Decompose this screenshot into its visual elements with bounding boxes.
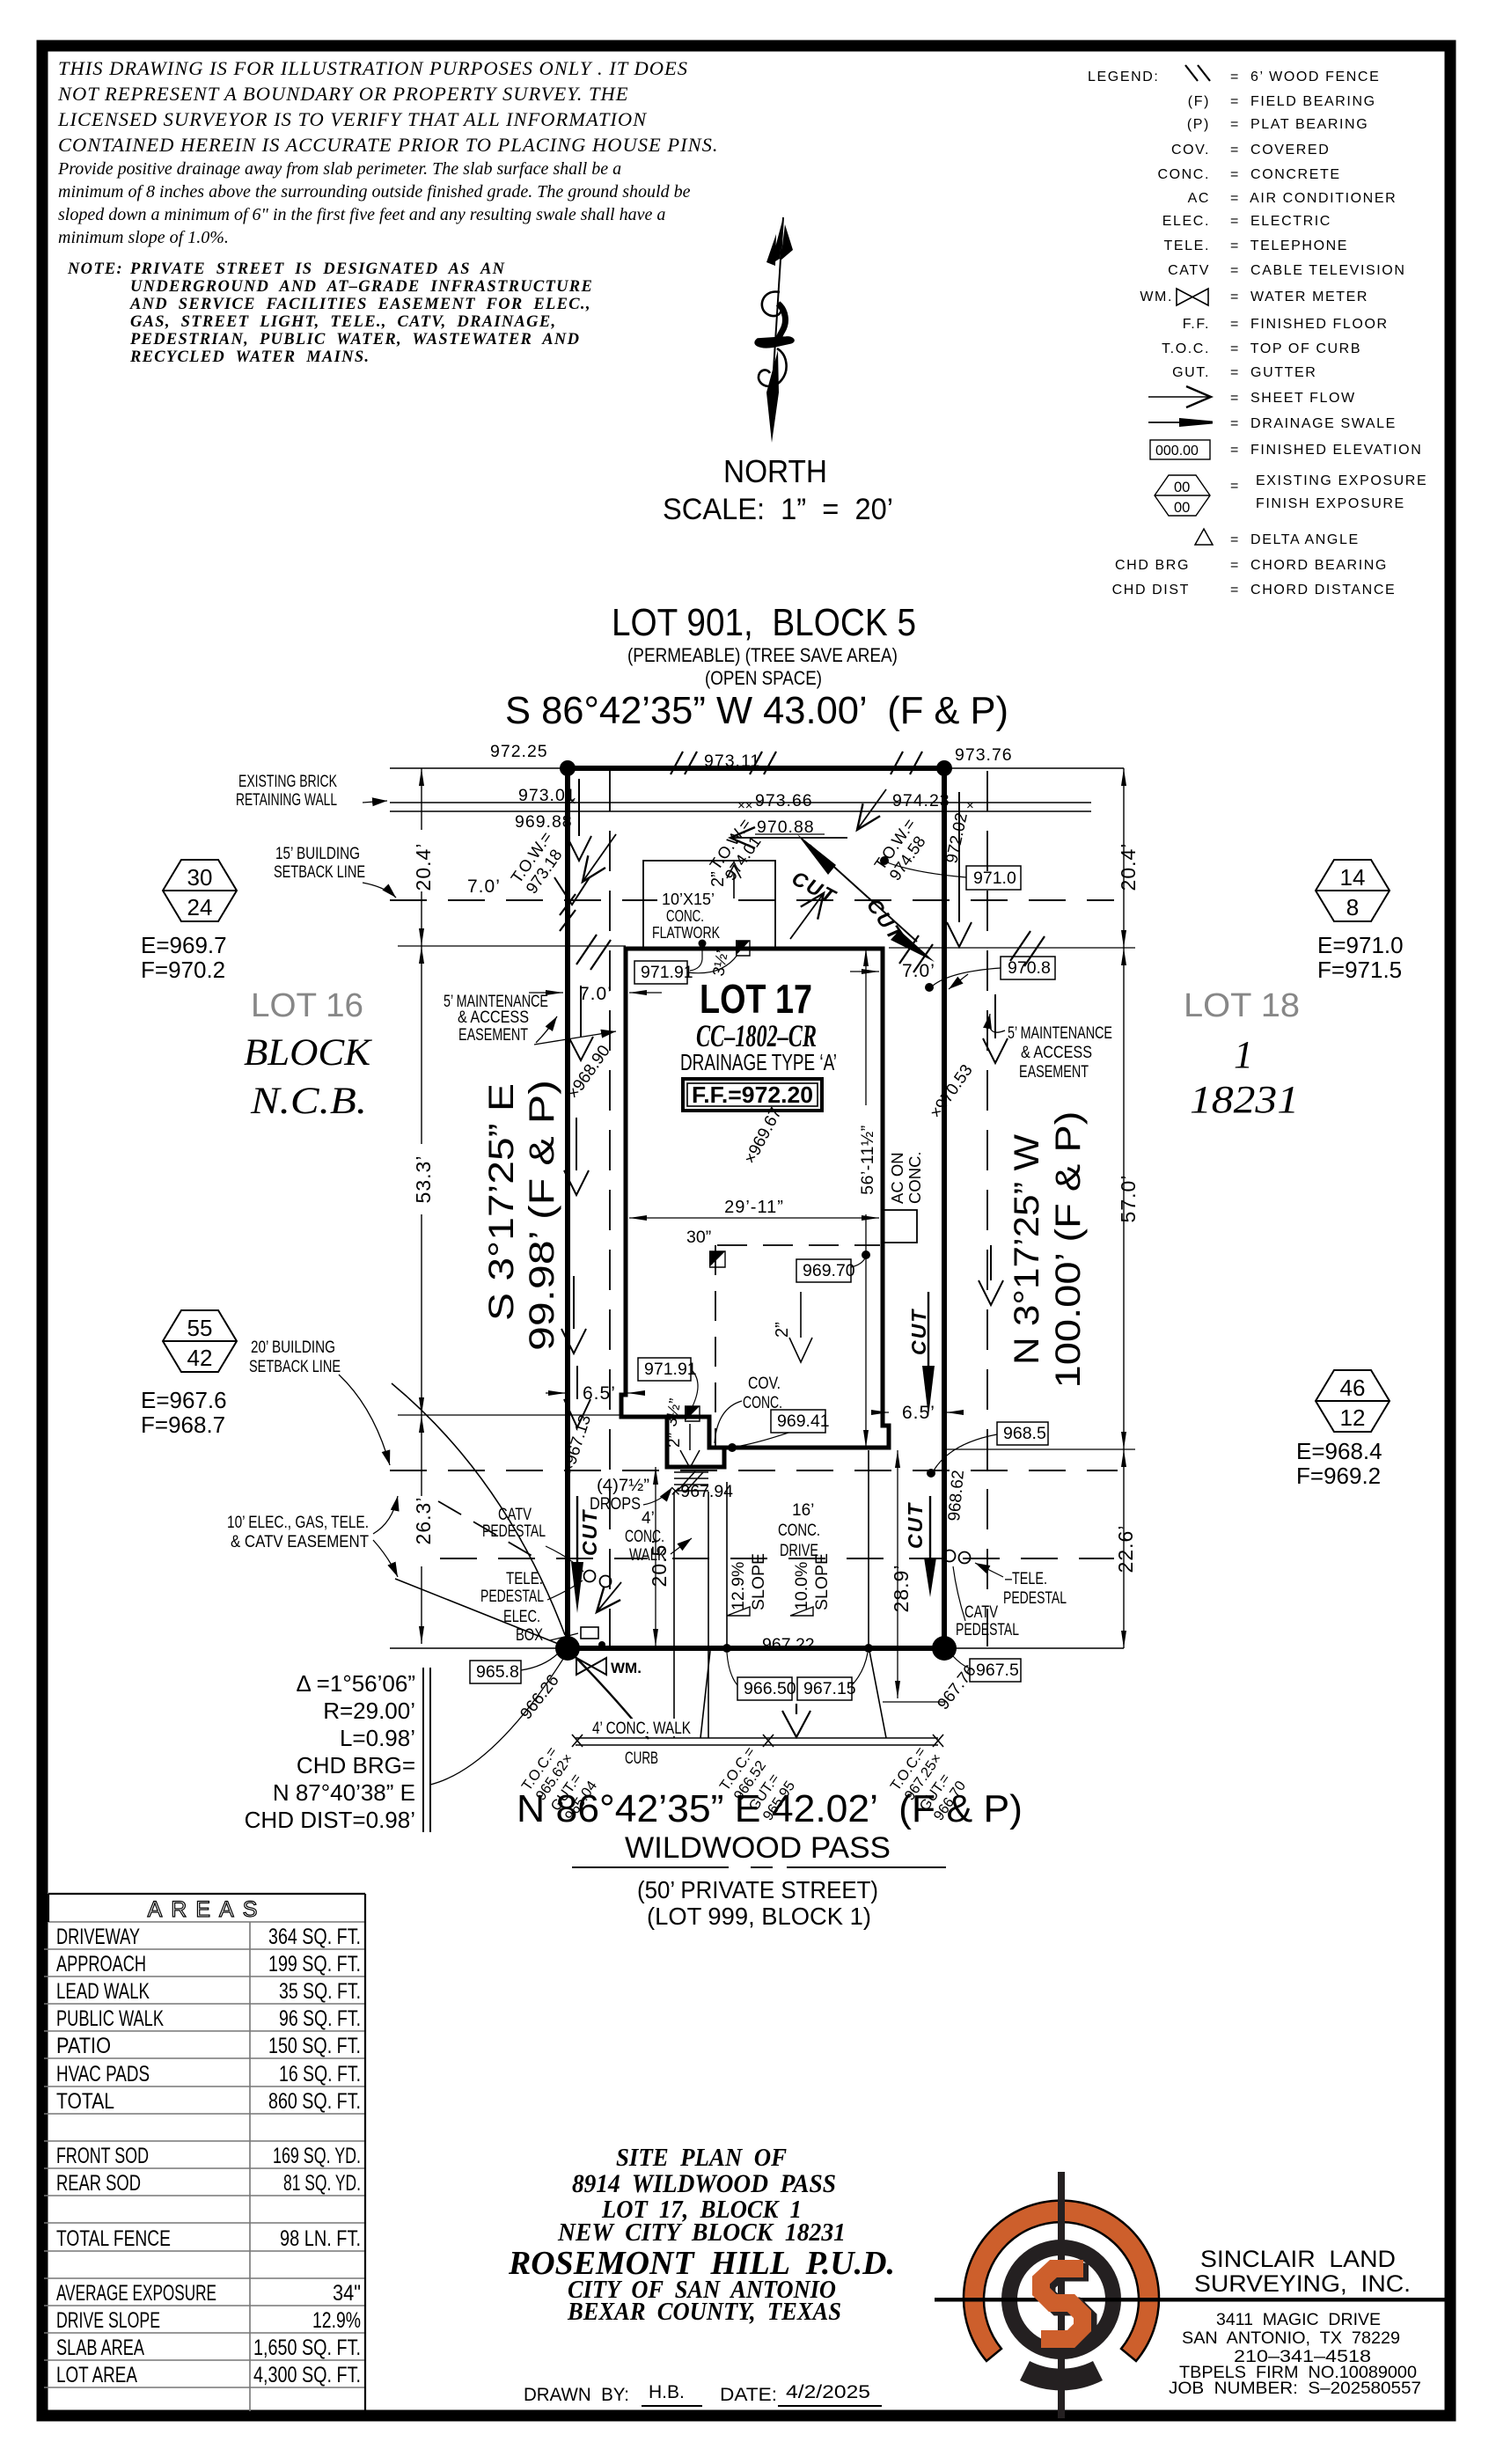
svg-text:973.66: 973.66 — [755, 791, 813, 810]
svg-text:L=0.98’: L=0.98’ — [340, 1725, 415, 1751]
svg-text:= FIELD BEARING: = FIELD BEARING — [1230, 94, 1376, 109]
svg-text:10.0%: 10.0% — [792, 1562, 811, 1610]
svg-text:S 86°42’35” W 43.00’ (F & P): S 86°42’35” W 43.00’ (F & P) — [505, 689, 1008, 732]
svg-text:7.0’: 7.0’ — [579, 984, 612, 1004]
svg-text:Provide positive drainage away: Provide positive drainage away from slab… — [57, 159, 621, 179]
svg-text:199 SQ. FT.: 199 SQ. FT. — [268, 1952, 361, 1976]
svg-text:CATV: CATV — [1168, 263, 1210, 278]
svg-text:35 SQ. FT.: 35 SQ. FT. — [279, 1979, 361, 2004]
svg-text:34": 34" — [333, 2281, 361, 2306]
svg-text:PEDESTAL: PEDESTAL — [480, 1588, 544, 1606]
svg-text:967.15: 967.15 — [803, 1679, 856, 1698]
svg-text:LOT 901, BLOCK 5: LOT 901, BLOCK 5 — [612, 601, 916, 644]
svg-text:BEXAR COUNTY, TEXAS: BEXAR COUNTY, TEXAS — [567, 2299, 841, 2326]
svg-text:AREAS: AREAS — [148, 1897, 267, 1922]
svg-text:& CATV EASEMENT: & CATV EASEMENT — [231, 1533, 369, 1551]
svg-text:00: 00 — [1174, 480, 1190, 495]
svg-text:1: 1 — [1234, 1033, 1253, 1076]
svg-text:2”: 2” — [665, 1433, 684, 1448]
svg-text:N 3°17’25” W: N 3°17’25” W — [1008, 1134, 1046, 1365]
svg-text:29’-11”: 29’-11” — [724, 1198, 784, 1217]
svg-text:98 LN. FT.: 98 LN. FT. — [280, 2226, 361, 2251]
svg-text:00: 00 — [1174, 500, 1190, 516]
svg-text:000.00: 000.00 — [1155, 444, 1199, 458]
svg-text:= DELTA ANGLE: = DELTA ANGLE — [1230, 532, 1360, 547]
svg-text:969.70: 969.70 — [803, 1261, 855, 1280]
svg-text:973.01: 973.01 — [518, 786, 576, 805]
svg-text:968.5: 968.5 — [1003, 1424, 1046, 1443]
svg-text:WILDWOOD PASS: WILDWOOD PASS — [625, 1831, 891, 1865]
svg-text:53.3’: 53.3’ — [412, 1155, 435, 1204]
svg-text:30”: 30” — [686, 1228, 711, 1247]
svg-text:EASEMENT: EASEMENT — [1019, 1063, 1089, 1082]
svg-text:AC ON: AC ON — [888, 1152, 906, 1204]
svg-text:4,300 SQ. FT.: 4,300 SQ. FT. — [253, 2363, 361, 2387]
svg-text:SLOPE: SLOPE — [812, 1553, 832, 1610]
svg-text:= ELECTRIC: = ELECTRIC — [1230, 214, 1331, 229]
svg-text:22.6’: 22.6’ — [1114, 1525, 1137, 1573]
svg-text:SETBACK LINE: SETBACK LINE — [274, 863, 365, 882]
svg-text:18231: 18231 — [1190, 1078, 1299, 1121]
svg-text:967.22: 967.22 — [762, 1635, 815, 1654]
svg-text:N 86°42’35” E 42.02’ (F & P): N 86°42’35” E 42.02’ (F & P) — [517, 1787, 1023, 1830]
svg-text:972.25: 972.25 — [490, 742, 548, 761]
svg-text:T.O.C.: T.O.C. — [1162, 341, 1210, 356]
svg-text:F.F.: F.F. — [1183, 317, 1210, 332]
svg-text:860 SQ. FT.: 860 SQ. FT. — [268, 2089, 361, 2114]
svg-text:LEGEND:: LEGEND: — [1088, 70, 1159, 84]
svg-text:(LOT 999, BLOCK 1): (LOT 999, BLOCK 1) — [647, 1903, 871, 1930]
svg-text:FINISH EXPOSURE: FINISH EXPOSURE — [1256, 496, 1405, 511]
svg-text:= CABLE TELEVISION: = CABLE TELEVISION — [1230, 263, 1406, 278]
svg-text:= SHEET FLOW: = SHEET FLOW — [1230, 391, 1356, 406]
svg-text:364 SQ. FT.: 364 SQ. FT. — [268, 1925, 361, 1949]
svg-text:DRIVEWAY: DRIVEWAY — [56, 1925, 140, 1949]
svg-text:56’-11½”: 56’-11½” — [858, 1125, 877, 1195]
svg-text:TOTAL FENCE: TOTAL FENCE — [56, 2226, 171, 2251]
svg-text:TELE.: TELE. — [506, 1570, 543, 1588]
svg-text:99.98’ (F & P): 99.98’ (F & P) — [523, 1080, 561, 1351]
svg-text:CONC.: CONC. — [778, 1522, 820, 1540]
svg-text:= COVERED: = COVERED — [1230, 143, 1330, 158]
svg-text:COV.: COV. — [748, 1375, 781, 1393]
svg-text:4’: 4’ — [642, 1509, 655, 1528]
svg-text:LICENSED SURVEYOR IS TO VERIFY: LICENSED SURVEYOR IS TO VERIFY THAT ALL … — [57, 108, 648, 130]
svg-text:CURB: CURB — [625, 1749, 658, 1768]
svg-text:12: 12 — [1340, 1404, 1366, 1431]
svg-text:CC–1802–CR: CC–1802–CR — [696, 1018, 817, 1053]
svg-text:2”: 2” — [708, 871, 728, 887]
svg-text:F.F.=972.20: F.F.=972.20 — [692, 1082, 813, 1108]
svg-text:RECYCLED WATER MAINS.: RECYCLED WATER MAINS. — [129, 348, 370, 366]
svg-text:969.88: 969.88 — [515, 812, 573, 832]
svg-text:16 SQ. FT.: 16 SQ. FT. — [279, 2062, 361, 2086]
svg-text:= TELEPHONE: = TELEPHONE — [1230, 238, 1348, 253]
svg-text:= AIR CONDITIONER: = AIR CONDITIONER — [1230, 191, 1397, 206]
svg-text:DRIVE SLOPE: DRIVE SLOPE — [56, 2308, 160, 2333]
svg-text:= PLAT BEARING: = PLAT BEARING — [1230, 117, 1368, 132]
svg-text:971.91: 971.91 — [641, 963, 693, 982]
svg-text:TELE.: TELE. — [1164, 238, 1210, 253]
svg-text:WALK: WALK — [629, 1546, 666, 1565]
svg-text:LOT 18: LOT 18 — [1184, 987, 1300, 1024]
svg-text:970.8: 970.8 — [1008, 958, 1051, 978]
svg-text:F=970.2: F=970.2 — [141, 957, 225, 983]
svg-text:CONC.: CONC. — [906, 1151, 924, 1204]
svg-text:12.9%: 12.9% — [312, 2308, 361, 2333]
svg-text:10’X15’: 10’X15’ — [662, 890, 715, 908]
svg-text:6.5’: 6.5’ — [902, 1403, 935, 1423]
svg-text:= GUTTER: = GUTTER — [1230, 365, 1316, 380]
svg-text:DRAINAGE TYPE ‘A’: DRAINAGE TYPE ‘A’ — [680, 1049, 837, 1075]
svg-text:(4)7½”: (4)7½” — [597, 1477, 649, 1495]
svg-text:= FINISHED ELEVATION: = FINISHED ELEVATION — [1230, 443, 1422, 458]
svg-text:ELEC.: ELEC. — [503, 1608, 540, 1626]
svg-text:PEDESTAL: PEDESTAL — [482, 1522, 546, 1541]
svg-text:24: 24 — [187, 894, 213, 920]
svg-text:EXISTING EXPOSURE: EXISTING EXPOSURE — [1256, 473, 1427, 488]
svg-text:4’ CONC. WALK: 4’ CONC. WALK — [592, 1720, 691, 1738]
svg-text:971.91: 971.91 — [644, 1360, 697, 1379]
svg-text:SETBACK LINE: SETBACK LINE — [249, 1358, 341, 1376]
svg-text:4/2/2025: 4/2/2025 — [786, 2382, 870, 2402]
svg-text:COV.: COV. — [1171, 143, 1210, 158]
svg-text:CUT: CUT — [904, 1502, 927, 1549]
svg-text:7.0’: 7.0’ — [902, 961, 935, 981]
svg-text:F=968.7: F=968.7 — [141, 1412, 225, 1438]
svg-text:TOTAL: TOTAL — [56, 2089, 114, 2114]
svg-text:SLAB AREA: SLAB AREA — [56, 2336, 144, 2360]
svg-text:CONC.: CONC. — [666, 906, 704, 925]
svg-text:PATIO: PATIO — [56, 2034, 111, 2058]
svg-text:SLOPE: SLOPE — [749, 1553, 768, 1610]
svg-text:12.9%: 12.9% — [729, 1562, 748, 1610]
svg-text:=: = — [1230, 479, 1240, 494]
svg-text:CHD DIST: CHD DIST — [1112, 583, 1190, 598]
svg-text:PUBLIC WALK: PUBLIC WALK — [56, 2006, 164, 2031]
svg-text:R=29.00’: R=29.00’ — [323, 1698, 415, 1724]
svg-text:169 SQ. YD.: 169 SQ. YD. — [273, 2144, 361, 2168]
svg-text:LOT AREA: LOT AREA — [56, 2363, 137, 2387]
svg-text:×: × — [568, 794, 576, 809]
svg-text:CHD DIST=0.98’: CHD DIST=0.98’ — [245, 1807, 415, 1833]
svg-text:CATV: CATV — [964, 1603, 998, 1622]
svg-text:JOB NUMBER: S–202580557: JOB NUMBER: S–202580557 — [1169, 2379, 1421, 2398]
svg-text:26.3’: 26.3’ — [412, 1497, 435, 1545]
svg-text:969.41: 969.41 — [777, 1412, 830, 1431]
svg-text:150 SQ. FT.: 150 SQ. FT. — [268, 2034, 361, 2058]
svg-text:LOT 17: LOT 17 — [700, 976, 812, 1022]
svg-text:(50’ PRIVATE STREET): (50’ PRIVATE STREET) — [637, 1876, 878, 1903]
svg-text:(P): (P) — [1187, 117, 1210, 132]
svg-text:(PERMEABLE) (TREE SAVE AREA): (PERMEABLE) (TREE SAVE AREA) — [627, 644, 898, 666]
svg-text:–TELE.: –TELE. — [1005, 1570, 1047, 1588]
svg-text:S 3°17’25” E: S 3°17’25” E — [482, 1083, 521, 1321]
svg-text:= CHORD BEARING: = CHORD BEARING — [1230, 558, 1388, 573]
svg-text:AND SERVICE FACILITIES EASE: AND SERVICE FACILITIES EASEMENT FOR ELEC… — [129, 296, 591, 313]
svg-text:GAS, STREET LIGHT, TELE.,: GAS, STREET LIGHT, TELE., CATV, DRAINAGE… — [130, 313, 556, 331]
svg-text:Δ =1°56’06”: Δ =1°56’06” — [297, 1670, 415, 1697]
svg-text:PEDESTRIAN, PUBLIC WATER, W: PEDESTRIAN, PUBLIC WATER, WASTEWATER AND — [129, 331, 580, 348]
svg-text:BOX: BOX — [516, 1626, 543, 1645]
svg-text:N.C.B.: N.C.B. — [250, 1081, 367, 1122]
svg-text:WM.: WM. — [611, 1660, 642, 1676]
svg-text:CHD BRG: CHD BRG — [1115, 558, 1190, 573]
svg-text:minimum slope of 1.0%.: minimum slope of 1.0%. — [58, 228, 229, 247]
svg-text:= WATER METER: = WATER METER — [1230, 290, 1368, 304]
svg-text:= DRAINAGE SWALE: = DRAINAGE SWALE — [1230, 416, 1397, 431]
svg-text:EXISTING BRICK: EXISTING BRICK — [238, 773, 337, 791]
svg-text:N 87°40’38” E: N 87°40’38” E — [273, 1779, 415, 1806]
svg-text:& ACCESS: & ACCESS — [1021, 1044, 1092, 1062]
svg-text:minimum of 8 inches above the: minimum of 8 inches above the surroundin… — [58, 182, 691, 202]
svg-text:××: ×× — [737, 798, 753, 813]
svg-text:8: 8 — [1346, 894, 1359, 920]
svg-text:967.5: 967.5 — [976, 1661, 1019, 1680]
svg-text:7.0’: 7.0’ — [467, 876, 501, 897]
svg-text:H.B.: H.B. — [649, 2382, 685, 2402]
svg-text:971.0: 971.0 — [973, 869, 1016, 888]
svg-text:42: 42 — [187, 1345, 213, 1371]
svg-text:CATV: CATV — [498, 1506, 532, 1524]
svg-text:GUT.: GUT. — [1172, 365, 1210, 380]
svg-text:NOT REPRESENT A BOUNDARY OR PR: NOT REPRESENT A BOUNDARY OR PROPERTY SUR… — [57, 83, 628, 105]
svg-text:15’ BUILDING: 15’ BUILDING — [275, 845, 360, 863]
svg-text:57.0’: 57.0’ — [1117, 1175, 1140, 1223]
svg-text:THIS DRAWING IS FOR ILLUSTRATI: THIS DRAWING IS FOR ILLUSTRATION PURPOSE… — [58, 57, 688, 79]
svg-text:E=968.4: E=968.4 — [1296, 1438, 1382, 1464]
svg-text:SINCLAIR LAND: SINCLAIR LAND — [1200, 2246, 1396, 2272]
svg-text:55: 55 — [187, 1315, 213, 1341]
svg-text:E=971.0: E=971.0 — [1317, 932, 1404, 958]
svg-text:sloped down a minimum of 6" in: sloped down a minimum of 6" in the first… — [58, 205, 665, 224]
svg-text:81 SQ. YD.: 81 SQ. YD. — [283, 2171, 361, 2196]
svg-text:APPROACH: APPROACH — [56, 1952, 146, 1976]
svg-text:CONC.: CONC. — [625, 1528, 664, 1546]
svg-text:UNDERGROUND AND AT–GRADE IN: UNDERGROUND AND AT–GRADE INFRASTRUCTURE — [130, 278, 593, 296]
svg-text:ELEC.: ELEC. — [1162, 214, 1210, 229]
svg-text:AVERAGE EXPOSURE: AVERAGE EXPOSURE — [56, 2281, 216, 2306]
svg-text:E=967.6: E=967.6 — [141, 1387, 227, 1413]
svg-text:965.8: 965.8 — [476, 1662, 519, 1682]
svg-text:SAN ANTONIO, TX 78229: SAN ANTONIO, TX 78229 — [1182, 2328, 1400, 2348]
svg-text:DRAWN BY:: DRAWN BY: — [524, 2385, 629, 2405]
svg-text:20.4’: 20.4’ — [1117, 843, 1140, 891]
svg-text:1,650 SQ. FT.: 1,650 SQ. FT. — [253, 2336, 361, 2360]
svg-text:FRONT SOD: FRONT SOD — [56, 2144, 149, 2168]
svg-text:CONTAINED HEREIN IS ACCURATE P: CONTAINED HEREIN IS ACCURATE PRIOR TO PL… — [58, 134, 719, 156]
svg-text:CUT: CUT — [578, 1509, 601, 1556]
svg-text:= TOP OF CURB: = TOP OF CURB — [1230, 341, 1361, 356]
svg-text:14: 14 — [1340, 864, 1366, 891]
svg-text:SITE PLAN OF: SITE PLAN OF — [616, 2145, 787, 2172]
svg-text:×967.94: ×967.94 — [671, 1482, 733, 1501]
svg-text:= 6’ WOOD FENCE: = 6’ WOOD FENCE — [1230, 70, 1380, 84]
svg-text:& ACCESS: & ACCESS — [458, 1008, 529, 1027]
svg-text:5’ MAINTENANCE: 5’ MAINTENANCE — [1008, 1024, 1112, 1043]
svg-text:46: 46 — [1340, 1375, 1366, 1401]
svg-text:LOT 16: LOT 16 — [251, 987, 363, 1024]
svg-text:PEDESTAL: PEDESTAL — [1003, 1589, 1067, 1608]
svg-text:= CHORD DISTANCE: = CHORD DISTANCE — [1230, 583, 1396, 598]
svg-text:CONC.: CONC. — [743, 1394, 782, 1412]
svg-text:NOTE:: NOTE: — [67, 260, 123, 278]
svg-text:100.00’ (F & P): 100.00’ (F & P) — [1049, 1111, 1088, 1389]
svg-text:96 SQ. FT.: 96 SQ. FT. — [279, 2006, 361, 2031]
svg-text:SCALE: 1” = 20’: SCALE: 1” = 20’ — [663, 493, 893, 526]
svg-text:CHD BRG=: CHD BRG= — [297, 1752, 415, 1778]
svg-text:DATE:: DATE: — [720, 2385, 777, 2405]
svg-text:RETAINING WALL: RETAINING WALL — [236, 791, 337, 810]
svg-text:973.11: 973.11 — [704, 752, 760, 771]
svg-text:= CONCRETE: = CONCRETE — [1230, 167, 1341, 182]
svg-text:(OPEN SPACE): (OPEN SPACE) — [705, 667, 822, 689]
svg-text:(F): (F) — [1188, 94, 1210, 109]
svg-text:974.23: 974.23 — [892, 791, 950, 810]
svg-text:CONC.: CONC. — [1157, 167, 1210, 182]
svg-text:3411 MAGIC DRIVE: 3411 MAGIC DRIVE — [1216, 2310, 1381, 2329]
svg-text:NEW CITY BLOCK 18231: NEW CITY BLOCK 18231 — [557, 2218, 846, 2247]
svg-text:FLATWORK: FLATWORK — [652, 923, 720, 942]
svg-text:20’ BUILDING: 20’ BUILDING — [251, 1338, 335, 1357]
svg-text:6.5’: 6.5’ — [583, 1383, 616, 1404]
svg-text:×: × — [966, 798, 974, 813]
svg-text:8914 WILDWOOD PASS: 8914 WILDWOOD PASS — [572, 2169, 836, 2198]
svg-text:10’ ELEC., GAS, TELE.: 10’ ELEC., GAS, TELE. — [227, 1514, 369, 1532]
svg-text:28.9’: 28.9’ — [890, 1565, 913, 1613]
svg-text:REAR SOD: REAR SOD — [56, 2171, 141, 2196]
svg-text:= FINISHED FLOOR: = FINISHED FLOOR — [1230, 317, 1389, 332]
svg-text:LEAD WALK: LEAD WALK — [56, 1979, 150, 2004]
svg-text:DROPS: DROPS — [590, 1495, 641, 1514]
svg-text:PRIVATE STREET IS DESIGNATE: PRIVATE STREET IS DESIGNATED AS AN — [129, 260, 505, 278]
svg-text:PEDESTAL: PEDESTAL — [956, 1621, 1019, 1639]
svg-text:AC: AC — [1188, 191, 1210, 206]
svg-text:E=969.7: E=969.7 — [141, 932, 227, 958]
svg-text:DRIVE: DRIVE — [780, 1542, 818, 1560]
svg-text:WM.: WM. — [1140, 290, 1173, 304]
svg-text:30: 30 — [187, 864, 213, 891]
svg-text:NORTH: NORTH — [723, 453, 827, 489]
svg-text:EASEMENT: EASEMENT — [458, 1026, 528, 1045]
svg-text:F=969.2: F=969.2 — [1296, 1463, 1381, 1489]
svg-text:SURVEYING, INC.: SURVEYING, INC. — [1194, 2270, 1411, 2297]
svg-text:HVAC PADS: HVAC PADS — [56, 2062, 150, 2086]
svg-text:16’: 16’ — [792, 1501, 814, 1520]
svg-text:973.76: 973.76 — [955, 745, 1013, 765]
svg-text:CUT: CUT — [907, 1309, 930, 1355]
svg-text:2”: 2” — [773, 1322, 792, 1338]
svg-text:966.50: 966.50 — [744, 1679, 796, 1698]
svg-text:F=971.5: F=971.5 — [1317, 957, 1402, 983]
svg-text:BLOCK: BLOCK — [244, 1032, 372, 1074]
svg-text:20.4’: 20.4’ — [412, 843, 435, 891]
